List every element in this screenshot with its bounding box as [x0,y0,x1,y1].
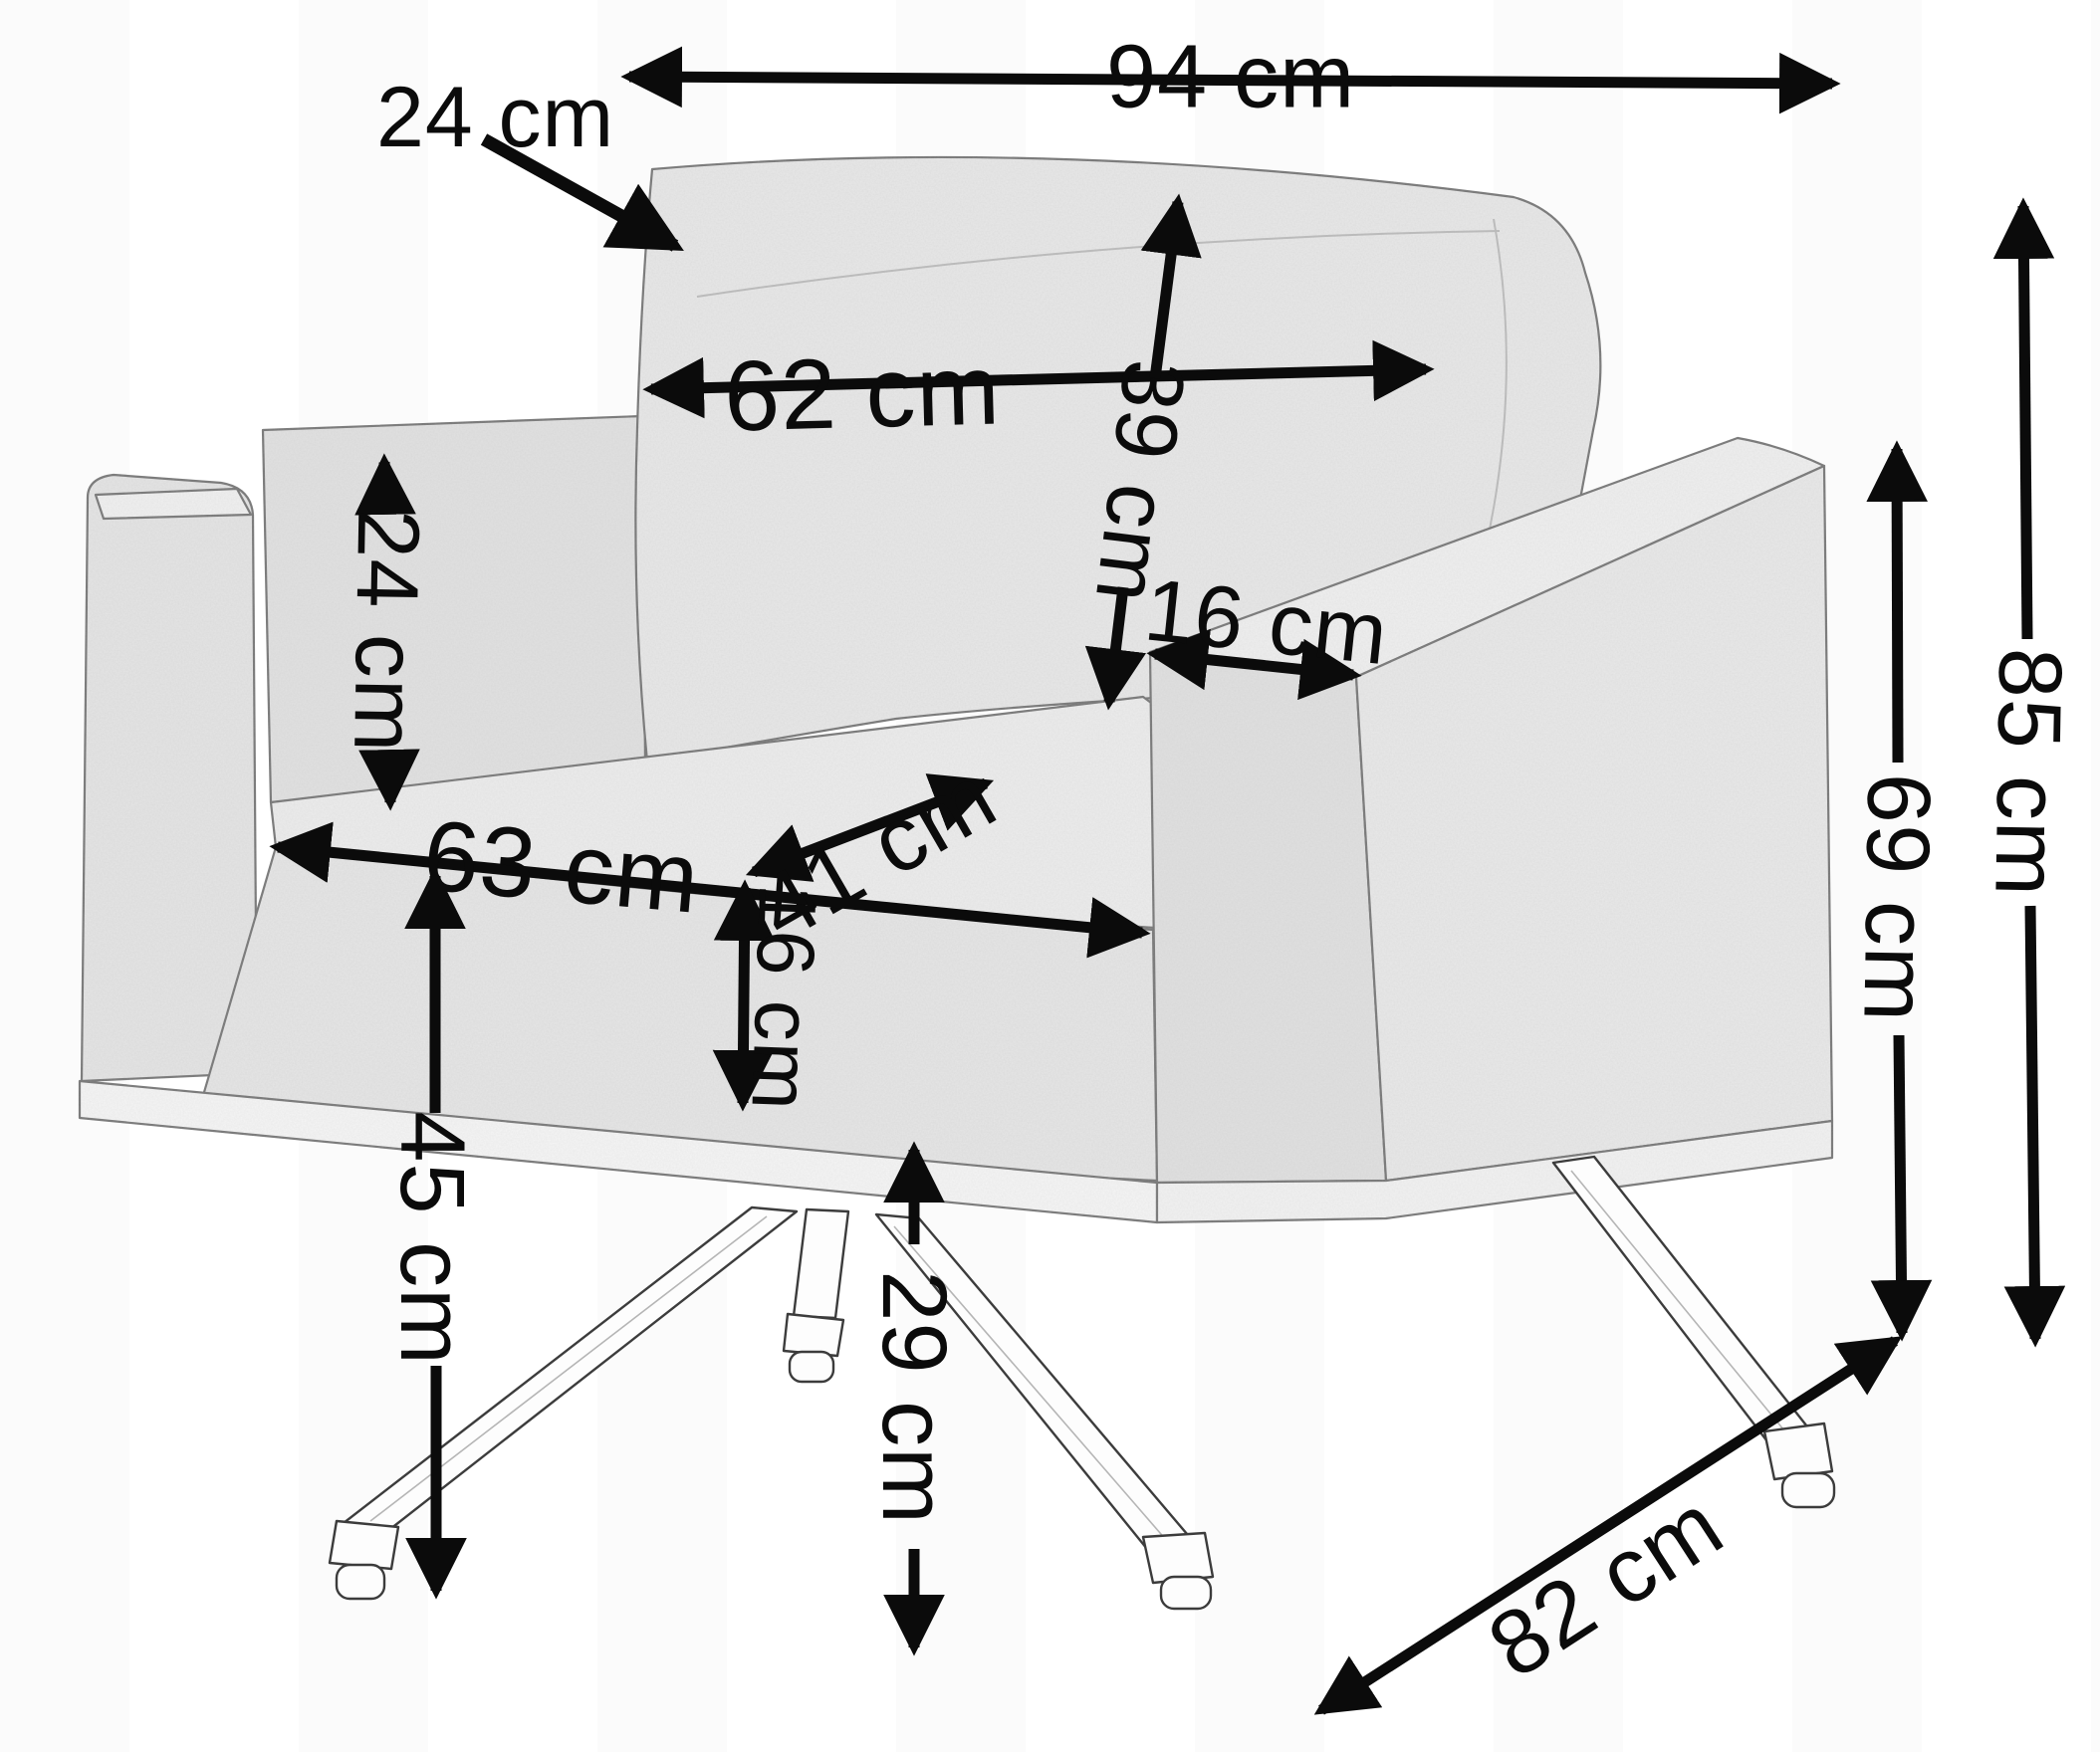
diagram-canvas: 94 cm 24 cm 62 cm 39 cm 24 cm 16 cm [0,0,2100,1752]
dim-overall-width: 94 cm [629,28,1832,127]
dim-armrest-height: 69 cm [1844,449,1948,1333]
dim-backrest-above-armrest: 24 cm [336,462,438,802]
dim-armrest-height-label: 69 cm [1844,772,1948,1023]
dim-overall-depth: 82 cm [1321,1341,1895,1710]
dim-backrest-above-armrest-arrow-bottom [389,751,390,802]
dim-overall-height-arrow-bottom [2030,906,2035,1339]
armchair-dimension-diagram: 94 cm 24 cm 62 cm 39 cm 24 cm 16 cm [0,0,2100,1752]
dim-armrest-height-arrow-top [1897,449,1898,763]
left-armrest-top [96,489,251,519]
right-armrest-front [1150,652,1386,1183]
dim-seat-height-label: 45 cm [381,1111,483,1366]
backrest-body-panel [263,416,645,802]
dim-seat-cushion-thickness-label: 16 cm [734,882,832,1112]
dim-seat-cushion-thickness: 16 cm [734,882,832,1112]
dim-overall-depth-label: 82 cm [1472,1474,1741,1698]
dim-overall-height: 85 cm [1976,206,2079,1339]
left-armrest [82,475,257,1081]
dim-back-cushion-thickness: 24 cm [376,70,675,246]
dim-overall-width-label: 94 cm [1106,28,1355,127]
dim-base-clearance: 29 cm [863,1150,965,1647]
dim-overall-height-arrow-top [2023,206,2027,639]
dim-armrest-height-arrow-bottom [1899,1035,1902,1333]
dim-overall-height-label: 85 cm [1976,647,2079,898]
dim-base-clearance-label: 29 cm [863,1270,965,1525]
dim-backrest-above-armrest-arrow-top [384,462,385,514]
dim-back-cushion-thickness-label: 24 cm [376,70,614,165]
leg-back-right [1553,1157,1834,1507]
dim-back-cushion-width-label: 62 cm [723,333,1002,452]
dim-backrest-above-armrest-label: 24 cm [336,509,438,754]
leg-back-center [784,1209,848,1382]
